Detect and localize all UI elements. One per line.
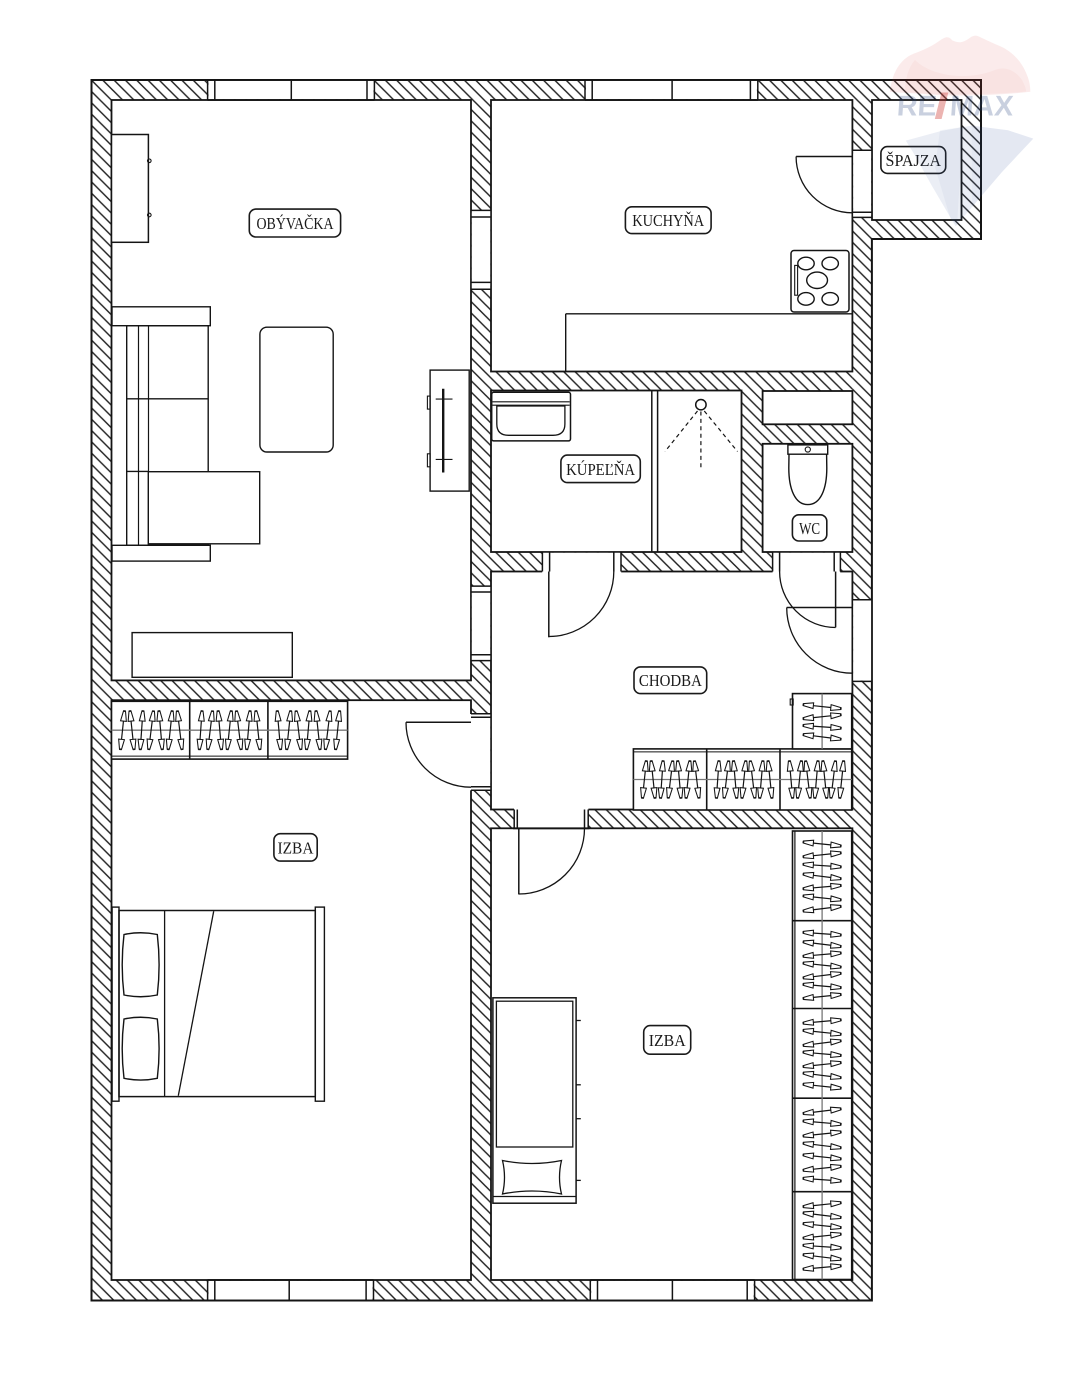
svg-text:IZBA: IZBA — [649, 1031, 687, 1050]
svg-text:RE: RE — [896, 91, 938, 123]
svg-text:OBÝVAČKA: OBÝVAČKA — [257, 214, 335, 233]
svg-text:CHODBA: CHODBA — [639, 671, 703, 690]
svg-text:WC: WC — [799, 519, 820, 538]
svg-text:MAX: MAX — [949, 91, 1015, 123]
svg-text:KÚPEĽŇA: KÚPEĽŇA — [566, 460, 636, 479]
svg-text:KUCHYŇA: KUCHYŇA — [632, 211, 705, 230]
svg-text:IZBA: IZBA — [278, 838, 315, 857]
